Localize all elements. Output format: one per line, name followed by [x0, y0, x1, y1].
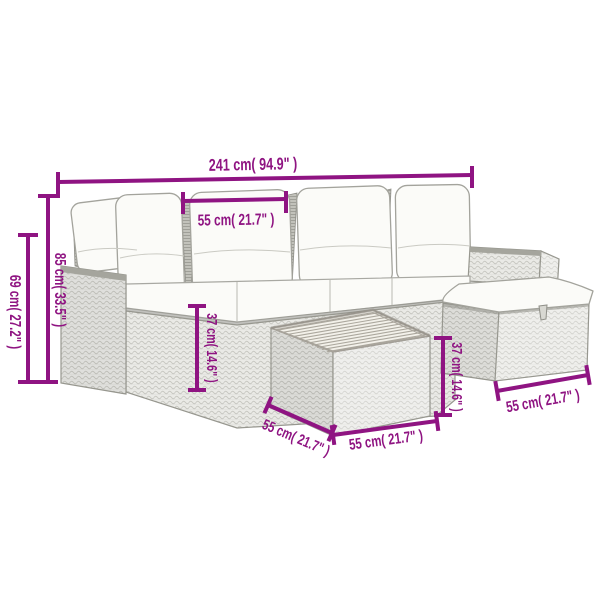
back-cushion [189, 189, 292, 292]
dim-label-seat-height: 37 cm( 14.6" ) [203, 313, 219, 383]
furniture-illustration [0, 0, 600, 600]
dim-label-arm-height: 69 cm( 27.2" ) [5, 275, 23, 349]
dim-label-ottoman-height: 37 cm( 14.6" ) [448, 342, 464, 412]
dim-label-total-width: 241 cm( 94.9" ) [209, 154, 298, 176]
left-armrest [61, 266, 126, 394]
back-cushion [296, 185, 392, 287]
back-cushion [395, 184, 471, 282]
ottoman-zipper-pull [539, 305, 547, 320]
dim-label-section-width: 55 cm( 21.7" ) [198, 211, 275, 230]
dim-label-back-height: 85 cm( 33.5" ) [50, 253, 68, 327]
product-dimension-image: 241 cm( 94.9" ) 55 cm( 21.7" ) 85 cm( 33… [0, 0, 600, 600]
